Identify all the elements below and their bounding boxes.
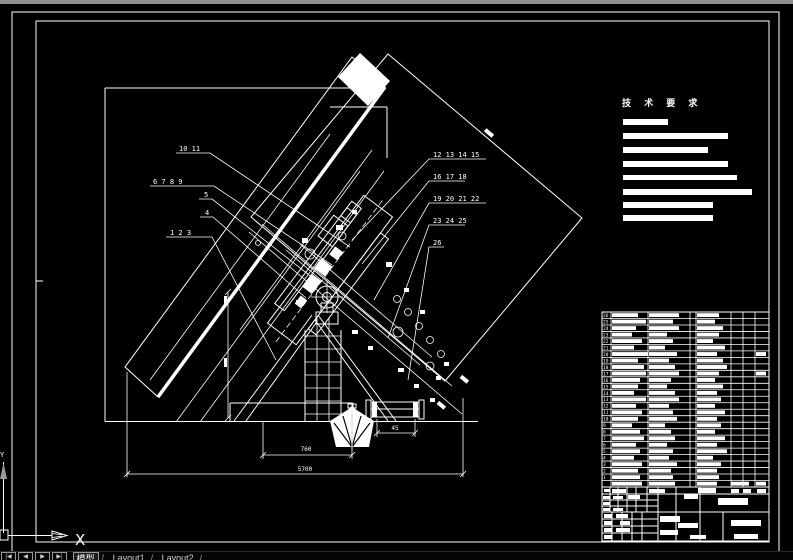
bom-text-bar (649, 462, 677, 466)
tech-requirement-line (623, 133, 728, 139)
frame-rails (150, 134, 462, 422)
bom-text-bar (649, 339, 673, 343)
bom-text-bar (612, 339, 642, 343)
bom-text-bar (612, 449, 640, 453)
title-block-text-bar (678, 523, 698, 528)
title-block-text-bar (734, 534, 758, 539)
bom-text-bar (697, 449, 727, 453)
bom-text-bar (612, 417, 638, 421)
title-block-text-bar (603, 502, 610, 505)
bom-text-bar (612, 456, 634, 460)
bom-text-bar (697, 313, 719, 317)
bom-text-bar (612, 378, 640, 382)
bom-text-bar (649, 378, 671, 382)
title-block-text-bar (731, 489, 739, 493)
bom-text-bar (612, 397, 646, 401)
title-block-text-bar (757, 489, 766, 493)
bom-text-bar (697, 469, 717, 473)
bom-text-bar (697, 326, 723, 330)
callout-label: 16 17 18 (433, 173, 467, 181)
bom-row-number: 25 (603, 319, 609, 325)
bom-row-number: 1 (603, 475, 606, 481)
tech-requirement-line (623, 161, 728, 167)
bom-text-bar (612, 430, 640, 434)
tab-layout2[interactable]: Layout2 (159, 552, 197, 560)
callout-label: 23 24 25 (433, 217, 467, 225)
bom-text-bar (697, 462, 721, 466)
bom-text-bar (697, 372, 719, 376)
bom-row-number: 12 (603, 404, 609, 410)
bom-text-bar (612, 443, 636, 447)
bom-row-number: 21 (603, 345, 609, 351)
tab-separator: / (151, 553, 154, 560)
dimensions: 5700 760 45 (124, 289, 466, 477)
bom-text-bar (697, 346, 725, 350)
bom-row-number: 18 (603, 365, 609, 371)
bom-text-bar (697, 430, 715, 434)
bom-text-bar (649, 410, 673, 414)
tab-nav-last-button[interactable]: ▶| (52, 552, 67, 560)
bom-text-bar (612, 320, 646, 324)
bom-text-bar (756, 372, 766, 376)
bom-text-bar (649, 313, 679, 317)
bom-text-bar (756, 352, 766, 356)
title-block-text-bar (660, 530, 678, 535)
bom-row-number: 23 (603, 332, 609, 338)
title-block-text-bar (604, 489, 610, 492)
bom-text-bar (649, 443, 667, 447)
bom-text-bar (697, 397, 721, 401)
bom-row-number: 17 (603, 371, 609, 377)
bom-text-bar (612, 404, 636, 408)
bom-text-bar (756, 482, 766, 486)
bom-rows: 2625242322212019181716151413121110987654… (603, 313, 766, 486)
bom-text-bar (612, 352, 648, 356)
bom-text-bar (612, 313, 638, 317)
bom-text-bar (697, 391, 717, 395)
bom-text-bar (649, 352, 677, 356)
bom-text-bar (612, 372, 646, 376)
bom-text-bar (697, 359, 723, 363)
bom-row-number: 6 (603, 443, 606, 449)
bom-text-bar (612, 365, 644, 369)
tech-requirement-line (623, 202, 713, 208)
tech-requirements-lines (623, 119, 752, 221)
bom-text-bar (697, 339, 713, 343)
title-block-text-bar (649, 489, 665, 493)
bom-text-bar (612, 410, 642, 414)
bom-row-number: 9 (603, 423, 606, 429)
bom-row-number: 13 (603, 397, 609, 403)
bom-text-bar (612, 469, 638, 473)
callout-label: 1 2 3 (170, 229, 191, 237)
rotated-panel (251, 54, 582, 381)
tab-separator: / (102, 553, 105, 560)
bom-text-bar (649, 436, 675, 440)
title-block-text-bar (718, 498, 748, 505)
bom-text-bar (612, 359, 638, 363)
bom-row-number: 5 (603, 449, 606, 455)
ucs-y-label: Y (0, 451, 5, 459)
bom-text-bar (649, 333, 667, 337)
title-block-text-bar (684, 494, 698, 499)
bom-row-number: 8 (603, 430, 606, 436)
layout-tab-bar: |◀◀▶▶| 模型/ Layout1/ Layout2/ (0, 551, 793, 560)
bom-text-bar (649, 430, 671, 434)
bom-text-bar (697, 423, 721, 427)
bom-table: 2625242322212019181716151413121110987654… (602, 312, 769, 487)
bom-text-bar (612, 326, 636, 330)
bom-text-bar (649, 482, 675, 486)
ucs-x-label: X (75, 531, 85, 549)
bom-row-number: 26 (603, 313, 609, 319)
bom-row-number: 22 (603, 339, 609, 345)
callout-label: 10 11 (179, 145, 200, 153)
gusset-foot (330, 404, 374, 450)
bom-text-bar (649, 372, 679, 376)
title-block-text-bar (612, 489, 626, 493)
callout-label: 5 (204, 191, 208, 199)
title-block-text-bar (660, 516, 680, 522)
ucs-y-arrow (0, 463, 7, 479)
tab-nav-prev-button[interactable]: ◀ (18, 552, 33, 560)
title-block-text-bar (604, 521, 612, 525)
title-block-text-bar (616, 528, 630, 532)
tech-requirement-line (623, 119, 668, 125)
tech-requirement-line (623, 215, 713, 221)
dim-small: 45 (391, 425, 399, 432)
bom-text-bar (612, 423, 632, 427)
bom-text-bar (612, 333, 632, 337)
tab-model[interactable]: 模型 (73, 552, 99, 560)
bom-text-bar (697, 404, 715, 408)
dim-mid: 760 (301, 446, 312, 453)
bom-text-bar (649, 346, 665, 350)
drawing-viewport: 技 术 要 求 (0, 0, 793, 560)
ucs-x-arrow (52, 531, 67, 540)
bom-text-bar (649, 469, 671, 473)
bom-text-bar (649, 404, 669, 408)
tab-nav-next-button[interactable]: ▶ (35, 552, 50, 560)
title-block-text-bar (743, 489, 751, 493)
bom-text-bar (697, 482, 717, 486)
bom-text-bar (697, 320, 715, 324)
title-block-text-bar (603, 508, 610, 511)
bom-text-bar (612, 482, 642, 486)
view-border (105, 88, 387, 422)
bom-row-number: 19 (603, 358, 609, 364)
tab-nav-first-button[interactable]: |◀ (1, 552, 16, 560)
cad-canvas[interactable]: 技 术 要 求 (0, 0, 793, 560)
inclined-beam (125, 53, 390, 397)
bom-text-bar (649, 475, 673, 479)
bom-text-bar (612, 391, 634, 395)
callout-label: 6 7 8 9 (153, 178, 183, 186)
bom-text-bar (697, 436, 725, 440)
callout-label: 19 20 21 22 (433, 195, 479, 203)
dim-overall: 5700 (298, 466, 313, 473)
tech-requirement-line (623, 189, 752, 195)
bom-text-bar (612, 346, 634, 350)
bom-text-bar (649, 391, 675, 395)
ucs-icon: Y X (0, 451, 85, 549)
bom-text-bar (649, 423, 665, 427)
support-frame (105, 315, 478, 422)
bom-text-bar (697, 378, 715, 382)
bom-text-bar (612, 462, 642, 466)
bom-text-bar (612, 475, 640, 479)
tab-layout1[interactable]: Layout1 (110, 552, 148, 560)
bom-text-bar (649, 449, 673, 453)
title-block-text-bar (620, 521, 630, 525)
bom-text-bar (697, 352, 717, 356)
bom-row-number: 24 (603, 326, 609, 332)
title-block-text-bar (628, 495, 640, 499)
tail-shaft-detail (366, 400, 424, 419)
bom-text-bar (697, 475, 719, 479)
tech-requirements-block: 技 术 要 求 (622, 97, 752, 221)
bom-text-bar (697, 384, 723, 388)
bom-text-bar (697, 456, 713, 460)
bom-text-bar (697, 333, 719, 337)
bom-text-bar (649, 320, 673, 324)
callout-label: 12 13 14 15 (433, 151, 479, 159)
callout-label: 26 (433, 239, 441, 247)
assembly-drawing: 5700 760 45 (105, 53, 582, 477)
bom-text-bar (649, 365, 675, 369)
title-block-text-bar (731, 520, 761, 526)
bom-row-number: 20 (603, 352, 609, 358)
title-block-text-bar (604, 514, 612, 518)
tech-requirements-title: 技 术 要 求 (622, 97, 702, 109)
bom-text-bar (731, 482, 749, 486)
bom-row-number: 15 (603, 384, 609, 390)
bom-text-bar (649, 359, 669, 363)
title-block-text-bar (603, 496, 610, 499)
bom-text-bar (649, 417, 677, 421)
bom-row-number: 14 (603, 391, 609, 397)
bom-row-number: 7 (603, 436, 606, 442)
bom-row-number: 4 (603, 456, 606, 462)
title-block-text-bar (613, 508, 623, 511)
bom-text-bar (612, 436, 644, 440)
bom-row-number: 16 (603, 378, 609, 384)
tech-requirement-line (623, 175, 737, 180)
bom-text-bar (649, 456, 669, 460)
bom-text-bar (649, 326, 679, 330)
bom-text-bar (697, 443, 717, 447)
bom-text-bar (697, 417, 717, 421)
bom-text-bar (649, 397, 679, 401)
title-block-text-bar (613, 496, 623, 499)
title-block-text-bar (604, 528, 612, 532)
title-block-text-bar (698, 488, 716, 493)
title-block-text-bar (616, 514, 628, 518)
title-block-text-bar (604, 535, 612, 539)
bom-text-bar (697, 410, 725, 414)
bom-row-number: 3 (603, 462, 606, 468)
bom-text-bar (612, 384, 638, 388)
bom-row-number: 10 (603, 417, 609, 423)
callout-label: 4 (205, 209, 209, 217)
bom-text-bar (649, 384, 667, 388)
bom-row-number: 11 (603, 410, 609, 416)
tech-requirement-line (623, 147, 708, 153)
title-block-text-bar (690, 535, 706, 539)
bom-row-number: 2 (603, 469, 606, 475)
bom-text-bar (697, 365, 727, 369)
title-block (602, 487, 769, 541)
tab-separator: / (200, 553, 203, 560)
